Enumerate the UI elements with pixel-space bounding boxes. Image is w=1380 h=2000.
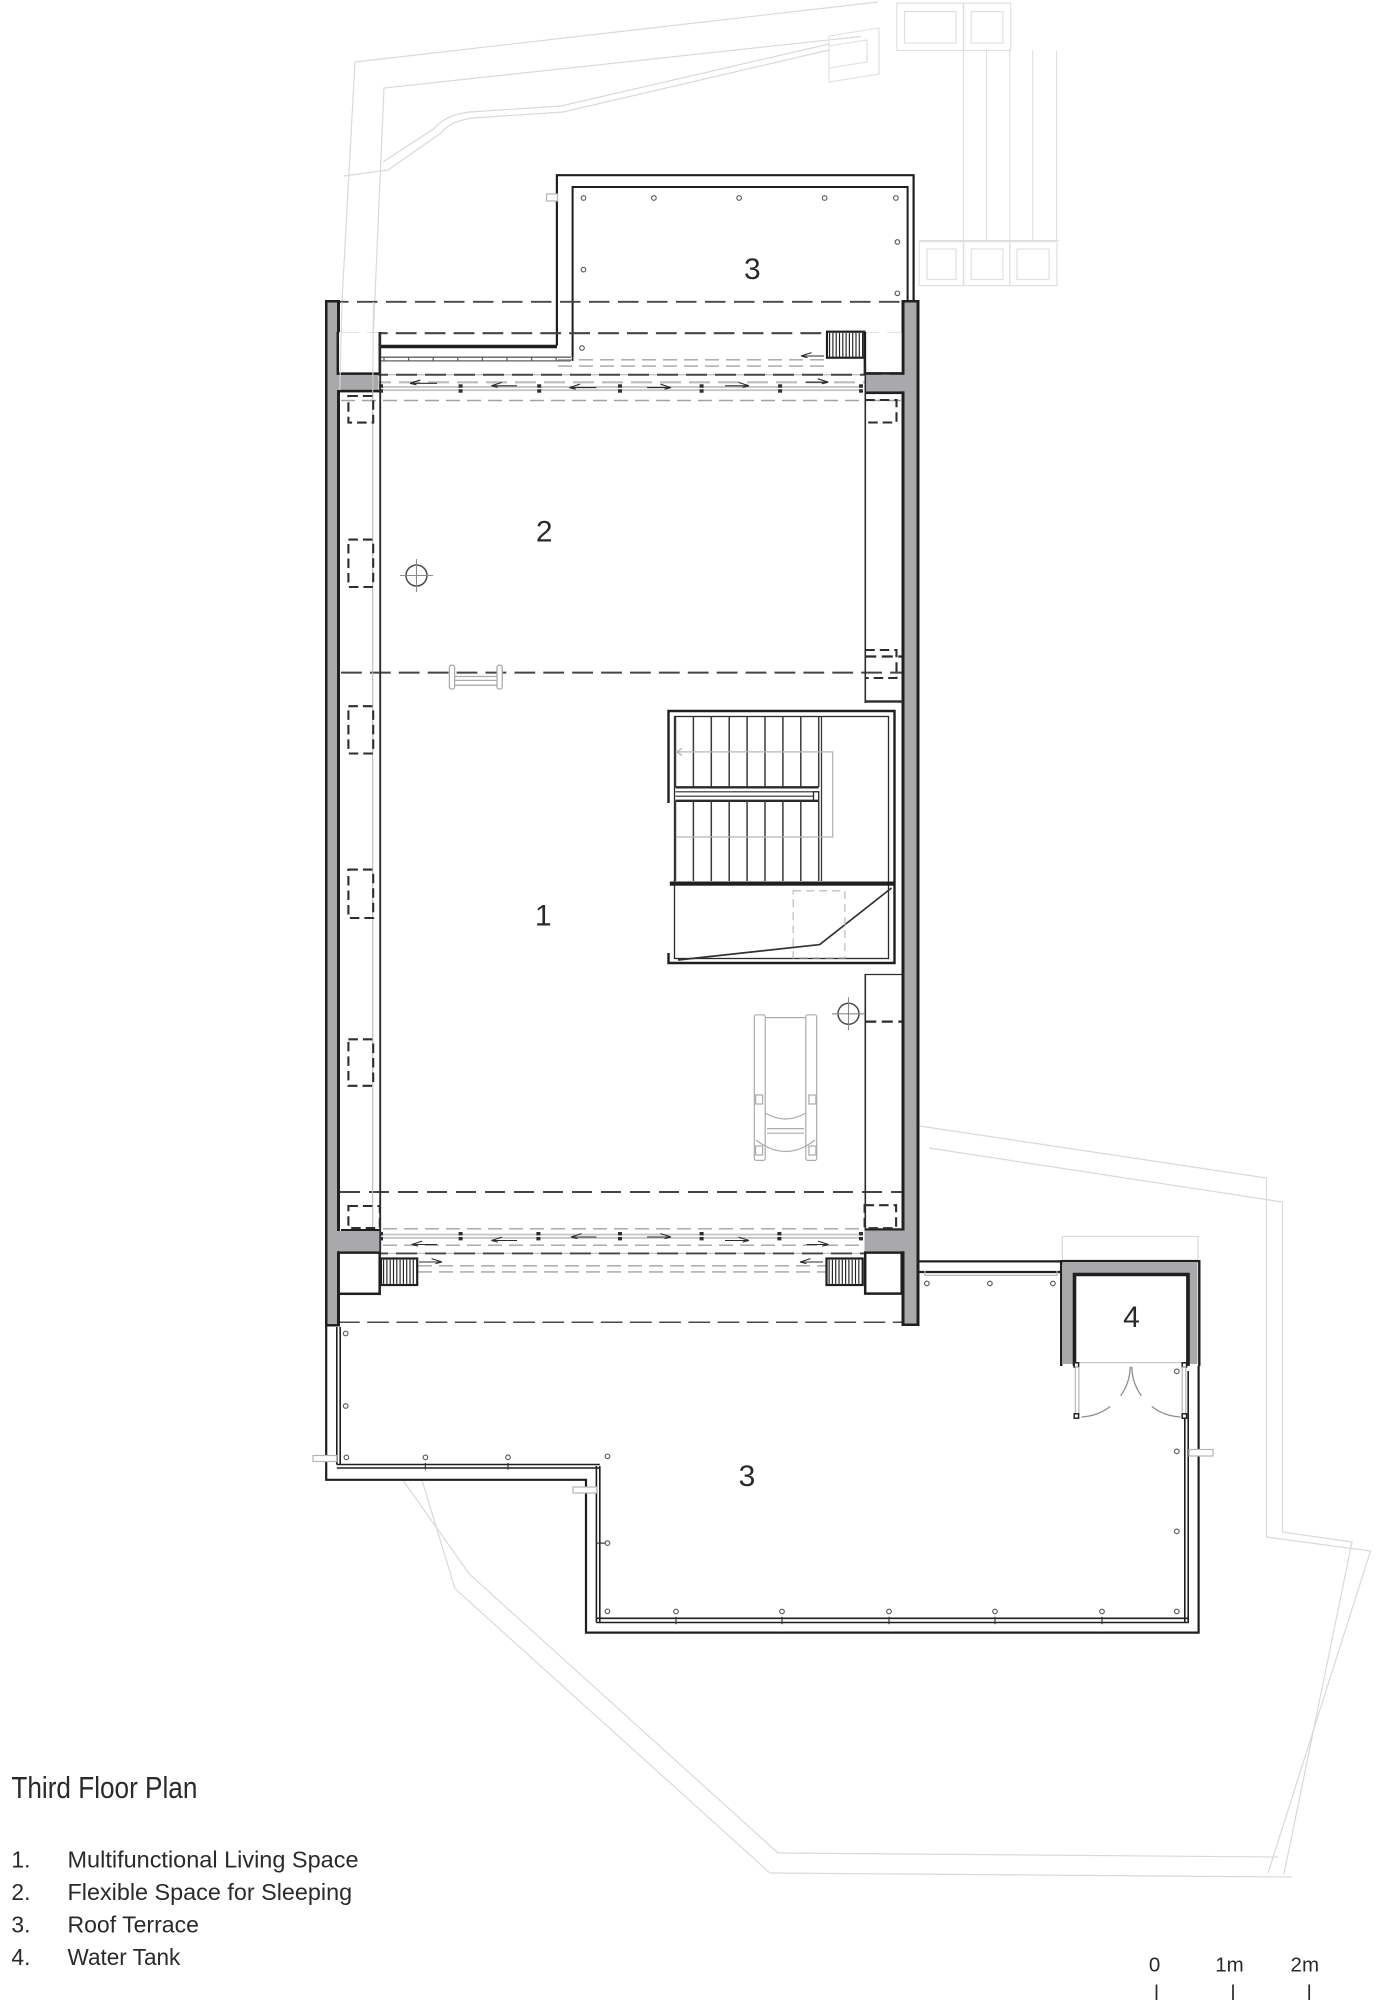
svg-text:Roof Terrace: Roof Terrace: [68, 1912, 199, 1938]
svg-text:Flexible Space for Sleeping: Flexible Space for Sleeping: [68, 1879, 353, 1905]
svg-text:Third Floor Plan: Third Floor Plan: [11, 1771, 197, 1805]
svg-text:3: 3: [744, 253, 761, 286]
svg-text:2.: 2.: [11, 1879, 30, 1905]
svg-text:1m: 1m: [1215, 1954, 1243, 1977]
svg-text:2m: 2m: [1291, 1954, 1319, 1977]
svg-text:Water Tank: Water Tank: [68, 1944, 181, 1970]
svg-text:1.: 1.: [11, 1846, 30, 1872]
svg-text:0: 0: [1149, 1954, 1160, 1977]
svg-text:Multifunctional Living Space: Multifunctional Living Space: [68, 1846, 359, 1872]
svg-text:4: 4: [1123, 1301, 1140, 1334]
svg-text:3: 3: [739, 1460, 756, 1493]
svg-text:1: 1: [535, 900, 552, 933]
svg-text:4.: 4.: [11, 1944, 30, 1970]
svg-text:2: 2: [536, 516, 553, 549]
svg-text:3.: 3.: [11, 1912, 30, 1938]
